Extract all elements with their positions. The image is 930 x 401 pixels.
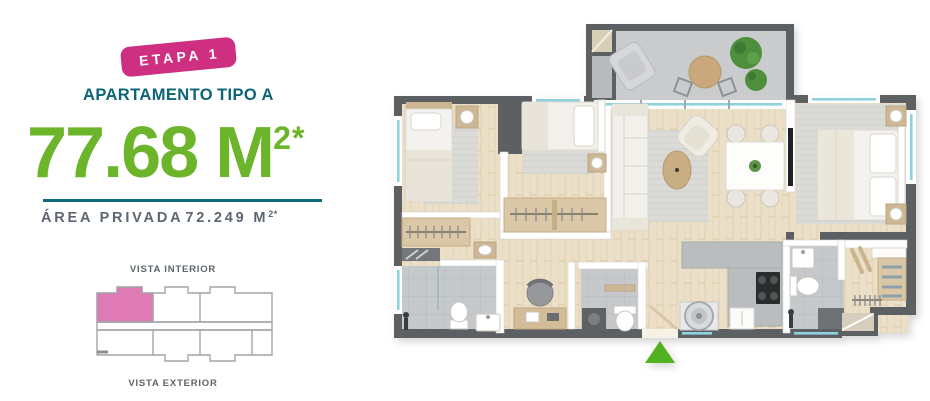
master-nightstand-top (886, 106, 906, 126)
private-area-line: ÁREA PRIVADA72.249 M2* (41, 209, 278, 226)
hall-vanity (474, 242, 496, 258)
floor-plan (390, 8, 930, 368)
keyplan-label-exterior: VISTA EXTERIOR (98, 378, 248, 389)
bedroom2-closet (402, 218, 470, 246)
bedroom3-bed (522, 100, 605, 152)
stage-badge: ETAPA 1 (120, 37, 237, 78)
brochure-page: ETAPA 1 APARTAMENTOTIPO A 77.68 M2* ÁREA… (0, 0, 930, 401)
master-nightstand-bottom (886, 204, 906, 224)
total-area-value: 77.68 M2* (27, 117, 305, 189)
desk-chair (527, 280, 553, 306)
private-area-value: 72.249 M (185, 210, 268, 226)
private-area-sup: 2* (268, 209, 278, 219)
apartment-title-word: APARTAMENTO (83, 86, 213, 104)
bedroom3-rug (523, 148, 595, 174)
keyplan-bottom-dividers (153, 330, 252, 355)
keyplan-corridor (97, 322, 272, 330)
bedroom2-nightstand (456, 106, 478, 128)
keyplan-top-dividers (153, 293, 200, 322)
tv (788, 128, 793, 186)
coffee-table (663, 151, 691, 189)
keyplan-label-interior: VISTA INTERIOR (98, 264, 248, 275)
shower-mat (818, 308, 844, 332)
apartment-type: TIPO A (217, 86, 274, 104)
total-area-sup: 2* (273, 120, 305, 156)
entrance-marker-triangle (645, 341, 675, 363)
hall-shelf (402, 248, 440, 261)
bedroom2-bed (406, 102, 452, 201)
building-keyplan (93, 281, 279, 365)
desk (514, 308, 566, 329)
private-area-label: ÁREA PRIVADA (41, 210, 183, 226)
balcony-planters (592, 30, 612, 98)
bedroom3-nightstand (588, 154, 606, 172)
bedroom3-closet (504, 198, 606, 232)
divider-line (43, 199, 322, 202)
keyplan-bottom-row (97, 330, 272, 361)
total-area-number: 77.68 M (27, 113, 273, 193)
keyplan-highlight-unit (97, 287, 153, 322)
shower-step (842, 313, 874, 331)
sofa (612, 104, 648, 230)
apartment-title: APARTAMENTOTIPO A (83, 86, 274, 105)
